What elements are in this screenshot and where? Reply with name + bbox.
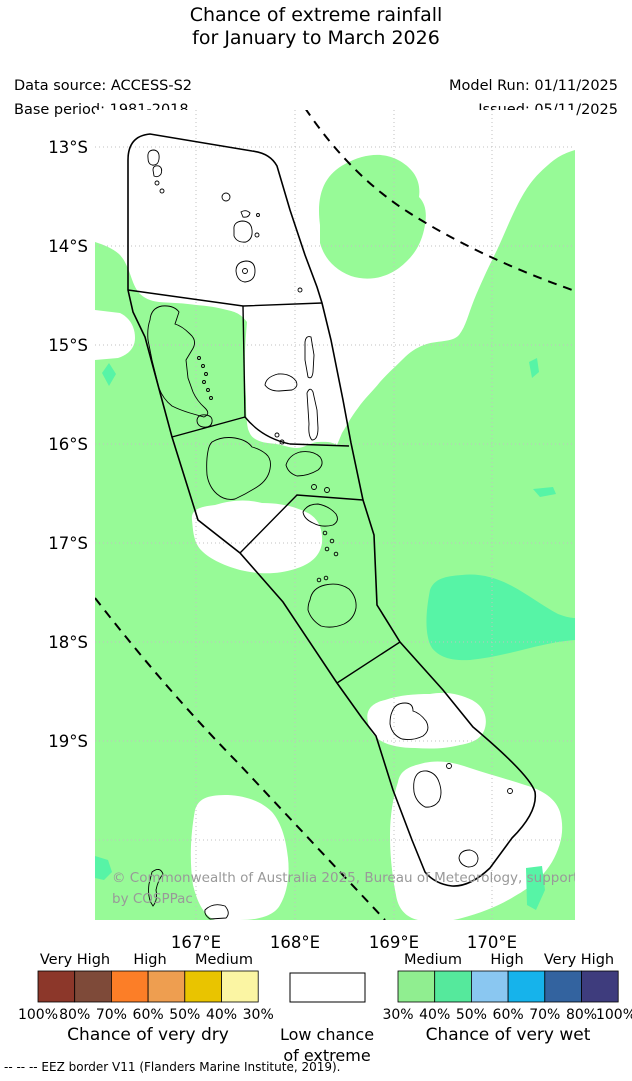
dry-colour-ramp xyxy=(38,971,258,1002)
wet-swatch xyxy=(435,971,472,1002)
dry-tick: 80% xyxy=(59,1007,90,1023)
dry-caption: Chance of very dry xyxy=(67,1025,229,1045)
dry-tick: 50% xyxy=(169,1007,200,1023)
rainfall-outlook-figure: Chance of extreme rainfall for January t… xyxy=(0,0,632,1081)
wet-tick: 70% xyxy=(529,1007,560,1023)
dry-swatch xyxy=(75,971,112,1002)
eez-border-note: -- -- -- EEZ border V11 (Flanders Marine… xyxy=(4,1060,341,1074)
lat-label: 17°S xyxy=(48,534,88,553)
map-copyright-line2: by COSPPac xyxy=(112,891,193,907)
dry-tick: 60% xyxy=(133,1007,164,1023)
lon-axis: 167°E 168°E 169°E 170°E xyxy=(171,933,517,952)
wet-tick: 100% xyxy=(596,1007,632,1023)
lat-label: 19°S xyxy=(48,732,88,751)
legend: Very High High Medium Medium High Very H… xyxy=(18,952,632,1065)
low-chance-swatch xyxy=(290,973,365,1002)
map-canvas: © Commonwealth of Australia 2025, Bureau… xyxy=(95,108,595,922)
dry-tick: 30% xyxy=(243,1007,274,1023)
wet-tick: 40% xyxy=(419,1007,450,1023)
dry-swatch xyxy=(111,971,148,1002)
model-run-label: Model Run: 01/11/2025 xyxy=(449,78,618,94)
wet-group-label: Very High xyxy=(544,952,614,968)
map-copyright-line1: © Commonwealth of Australia 2025, Bureau… xyxy=(112,870,595,886)
low-chance-caption-line1: Low chance xyxy=(280,1025,374,1044)
wet-percent-ticks: 30% 40% 50% 60% 70% 80% 100% xyxy=(382,1007,632,1023)
wet-tick: 30% xyxy=(382,1007,413,1023)
dry-percent-ticks: 100% 80% 70% 60% 50% 40% 30% xyxy=(18,1007,274,1023)
wet-tick: 80% xyxy=(566,1007,597,1023)
dry-group-label: Medium xyxy=(195,952,253,968)
lat-label: 16°S xyxy=(48,435,88,454)
wet-swatch xyxy=(508,971,545,1002)
data-source-label: Data source: ACCESS-S2 xyxy=(14,78,192,94)
dry-group-label: High xyxy=(133,952,166,968)
lon-label: 170°E xyxy=(467,933,517,952)
dry-tick: 70% xyxy=(96,1007,127,1023)
lon-label: 168°E xyxy=(270,933,320,952)
lat-label: 13°S xyxy=(48,138,88,157)
wet-group-label: Medium xyxy=(404,952,462,968)
wet-tick: 50% xyxy=(456,1007,487,1023)
lon-label: 169°E xyxy=(369,933,419,952)
wet-swatch xyxy=(545,971,582,1002)
dry-group-label: Very High xyxy=(40,952,110,968)
wet-caption: Chance of very wet xyxy=(426,1025,591,1045)
wet-colour-ramp xyxy=(398,971,618,1002)
wet-tick: 60% xyxy=(493,1007,524,1023)
page-title: Chance of extreme rainfall xyxy=(190,4,443,26)
dry-tick: 100% xyxy=(18,1007,58,1023)
wet-group-label: High xyxy=(490,952,523,968)
dry-tick: 40% xyxy=(206,1007,237,1023)
wet-swatch xyxy=(582,971,619,1002)
lat-label: 15°S xyxy=(48,336,88,355)
wet-swatch xyxy=(471,971,508,1002)
lat-label: 18°S xyxy=(48,633,88,652)
forecast-map-page: { "header": { "title_line1": "Chance of … xyxy=(0,0,632,1081)
lon-label: 167°E xyxy=(171,933,221,952)
page-subtitle: for January to March 2026 xyxy=(192,27,440,49)
wet-swatch xyxy=(398,971,435,1002)
dry-swatch xyxy=(38,971,75,1002)
lat-axis: 13°S 14°S 15°S 16°S 17°S 18°S 19°S xyxy=(48,138,88,751)
dry-swatch xyxy=(222,971,259,1002)
lat-label: 14°S xyxy=(48,237,88,256)
dry-swatch xyxy=(185,971,222,1002)
dry-swatch xyxy=(148,971,185,1002)
